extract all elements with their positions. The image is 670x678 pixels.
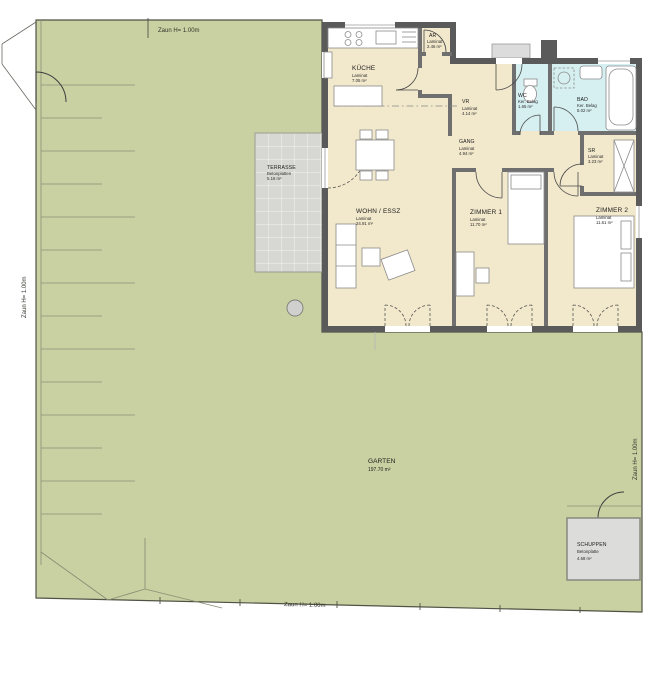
bathtub xyxy=(606,66,636,130)
area-floor: Betonplatte xyxy=(577,549,599,554)
room-area: 11.70 m² xyxy=(470,222,487,227)
kitchen-island xyxy=(334,86,382,106)
room-name: KÜCHE xyxy=(352,64,375,72)
bed-zimmer1 xyxy=(508,172,544,244)
floor-plan-canvas: KÜCHE Laminat 7.05 m² AR Laminat 2.46 m²… xyxy=(0,0,670,678)
room-area: 3.23 m² xyxy=(588,159,603,164)
area-name: SCHUPPEN xyxy=(577,542,607,548)
bed-zimmer2 xyxy=(574,216,634,288)
floor-plan-page: KÜCHE Laminat 7.05 m² AR Laminat 2.46 m²… xyxy=(0,0,670,678)
fence-label-top: Zaun H= 1.00m xyxy=(158,28,200,34)
sofa xyxy=(336,224,356,288)
round-planter xyxy=(287,300,303,316)
chimney xyxy=(541,40,557,58)
fence-label-right: Zaun H= 1.00m xyxy=(633,438,639,480)
area-size: 4.68 m² xyxy=(577,556,592,561)
room-area: 1.65 m² xyxy=(518,104,533,109)
washbasin xyxy=(580,66,602,79)
room-area: 7.05 m² xyxy=(352,78,367,83)
room-label-gang: GANG Laminat 4.94 m² xyxy=(459,139,475,156)
fence-label-left: Zaun H= 1.00m xyxy=(22,276,28,318)
room-area: 5.02 m² xyxy=(577,108,592,113)
kitchen-cabinet xyxy=(324,52,332,78)
kitchen-counter xyxy=(328,28,418,48)
desk-chair xyxy=(476,268,489,283)
coffee-table xyxy=(362,248,380,266)
fence-label-bottom: Zaun H= 1.00m xyxy=(284,602,326,609)
room-name: GANG xyxy=(459,139,475,145)
room-area: 4.94 m² xyxy=(459,151,474,156)
area-size: 197.70 m² xyxy=(368,467,391,473)
sr-closet xyxy=(614,140,634,192)
desk xyxy=(456,252,474,296)
terrace xyxy=(255,133,322,272)
area-name: GARTEN xyxy=(368,458,396,465)
room-name: VR xyxy=(462,99,470,105)
site-boundary-topleft xyxy=(2,22,36,110)
room-area: 24.91 m² xyxy=(356,221,374,226)
room-name: ZIMMER 2 xyxy=(596,207,628,214)
area-size: 5.16 m² xyxy=(267,176,282,181)
entry-stoop xyxy=(492,44,530,58)
room-area: 11.61 m² xyxy=(596,220,613,225)
room-area: 4.14 m² xyxy=(462,111,477,116)
room-area: 2.46 m² xyxy=(427,44,442,49)
room-name: WOHN / ESSZ xyxy=(356,208,400,215)
room-name: ZIMMER 1 xyxy=(470,209,502,216)
